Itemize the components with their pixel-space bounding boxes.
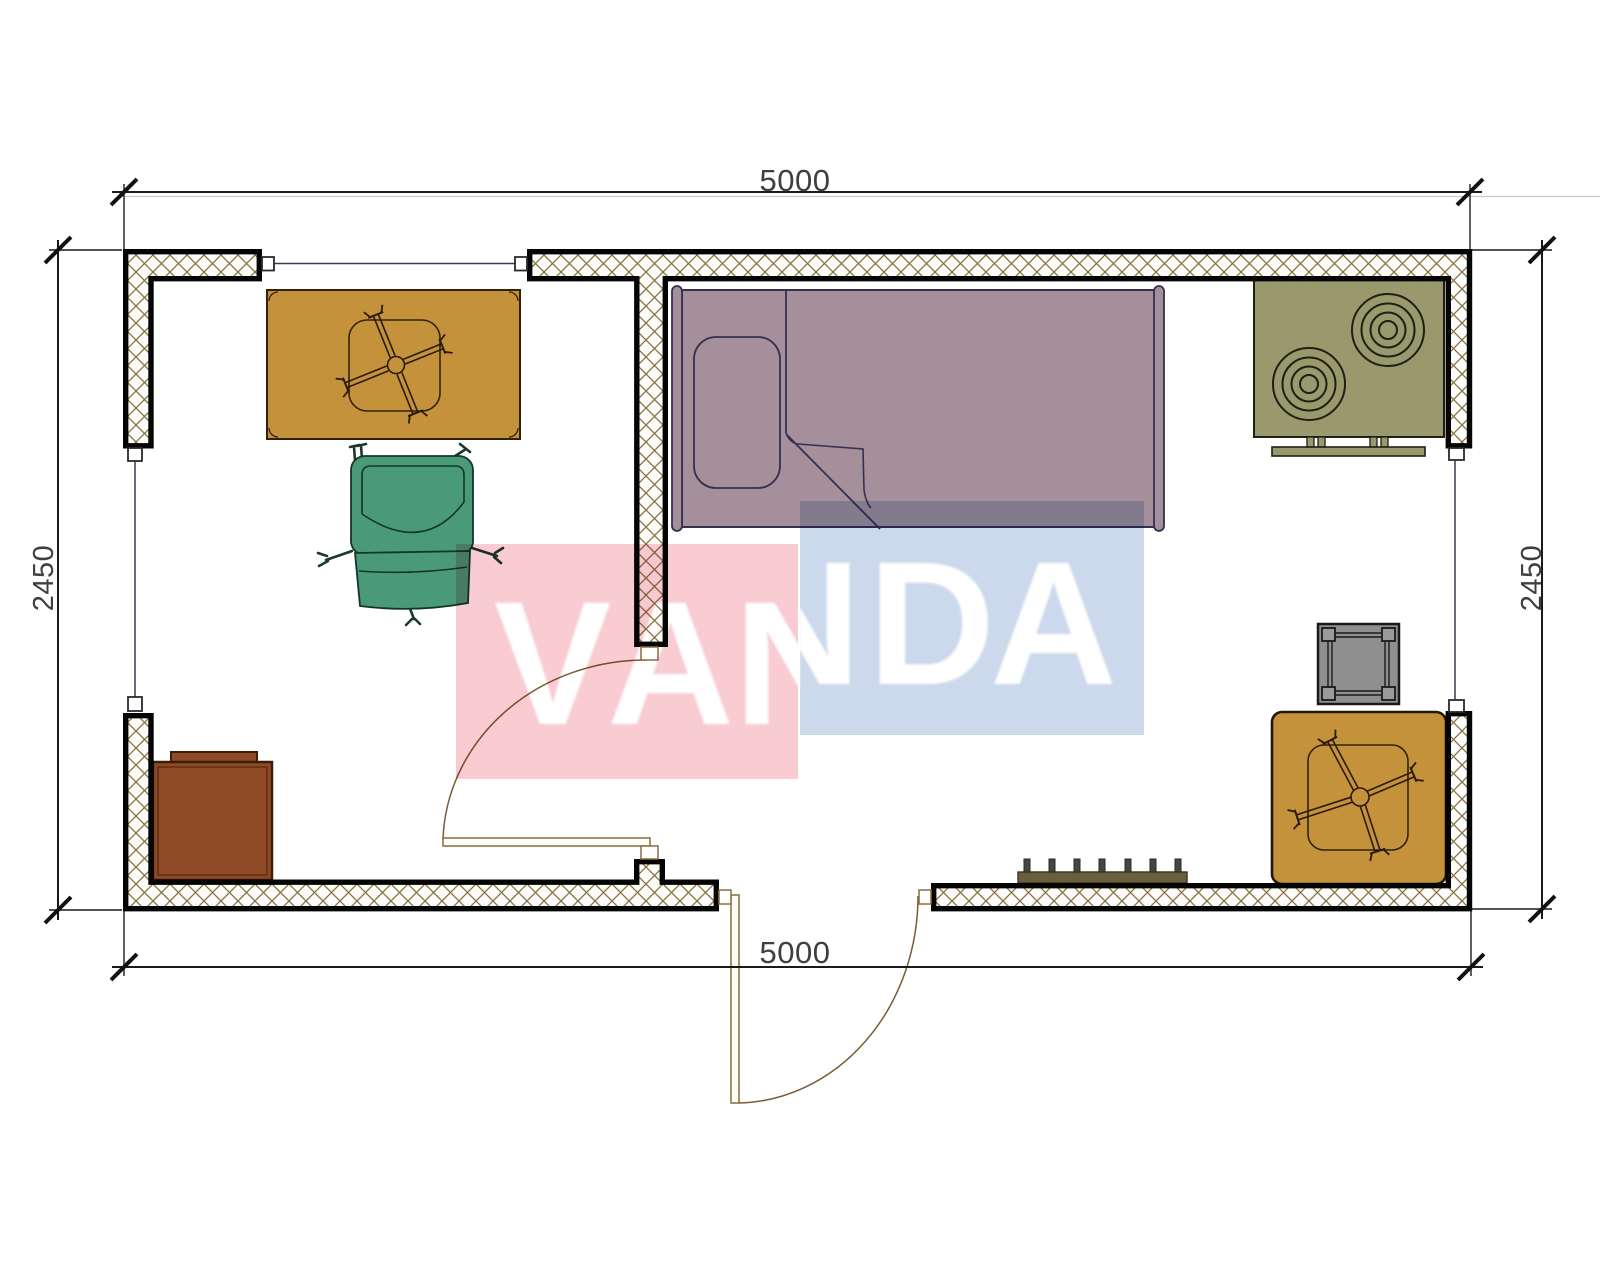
svg-text:A: A [607,566,734,762]
svg-text:V: V [494,566,611,762]
svg-text:A: A [990,526,1117,722]
svg-text:5000: 5000 [760,935,831,970]
svg-text:5000: 5000 [760,163,831,198]
svg-text:2450: 2450 [1516,545,1548,612]
svg-text:2450: 2450 [28,545,60,612]
svg-text:D: D [868,526,995,722]
